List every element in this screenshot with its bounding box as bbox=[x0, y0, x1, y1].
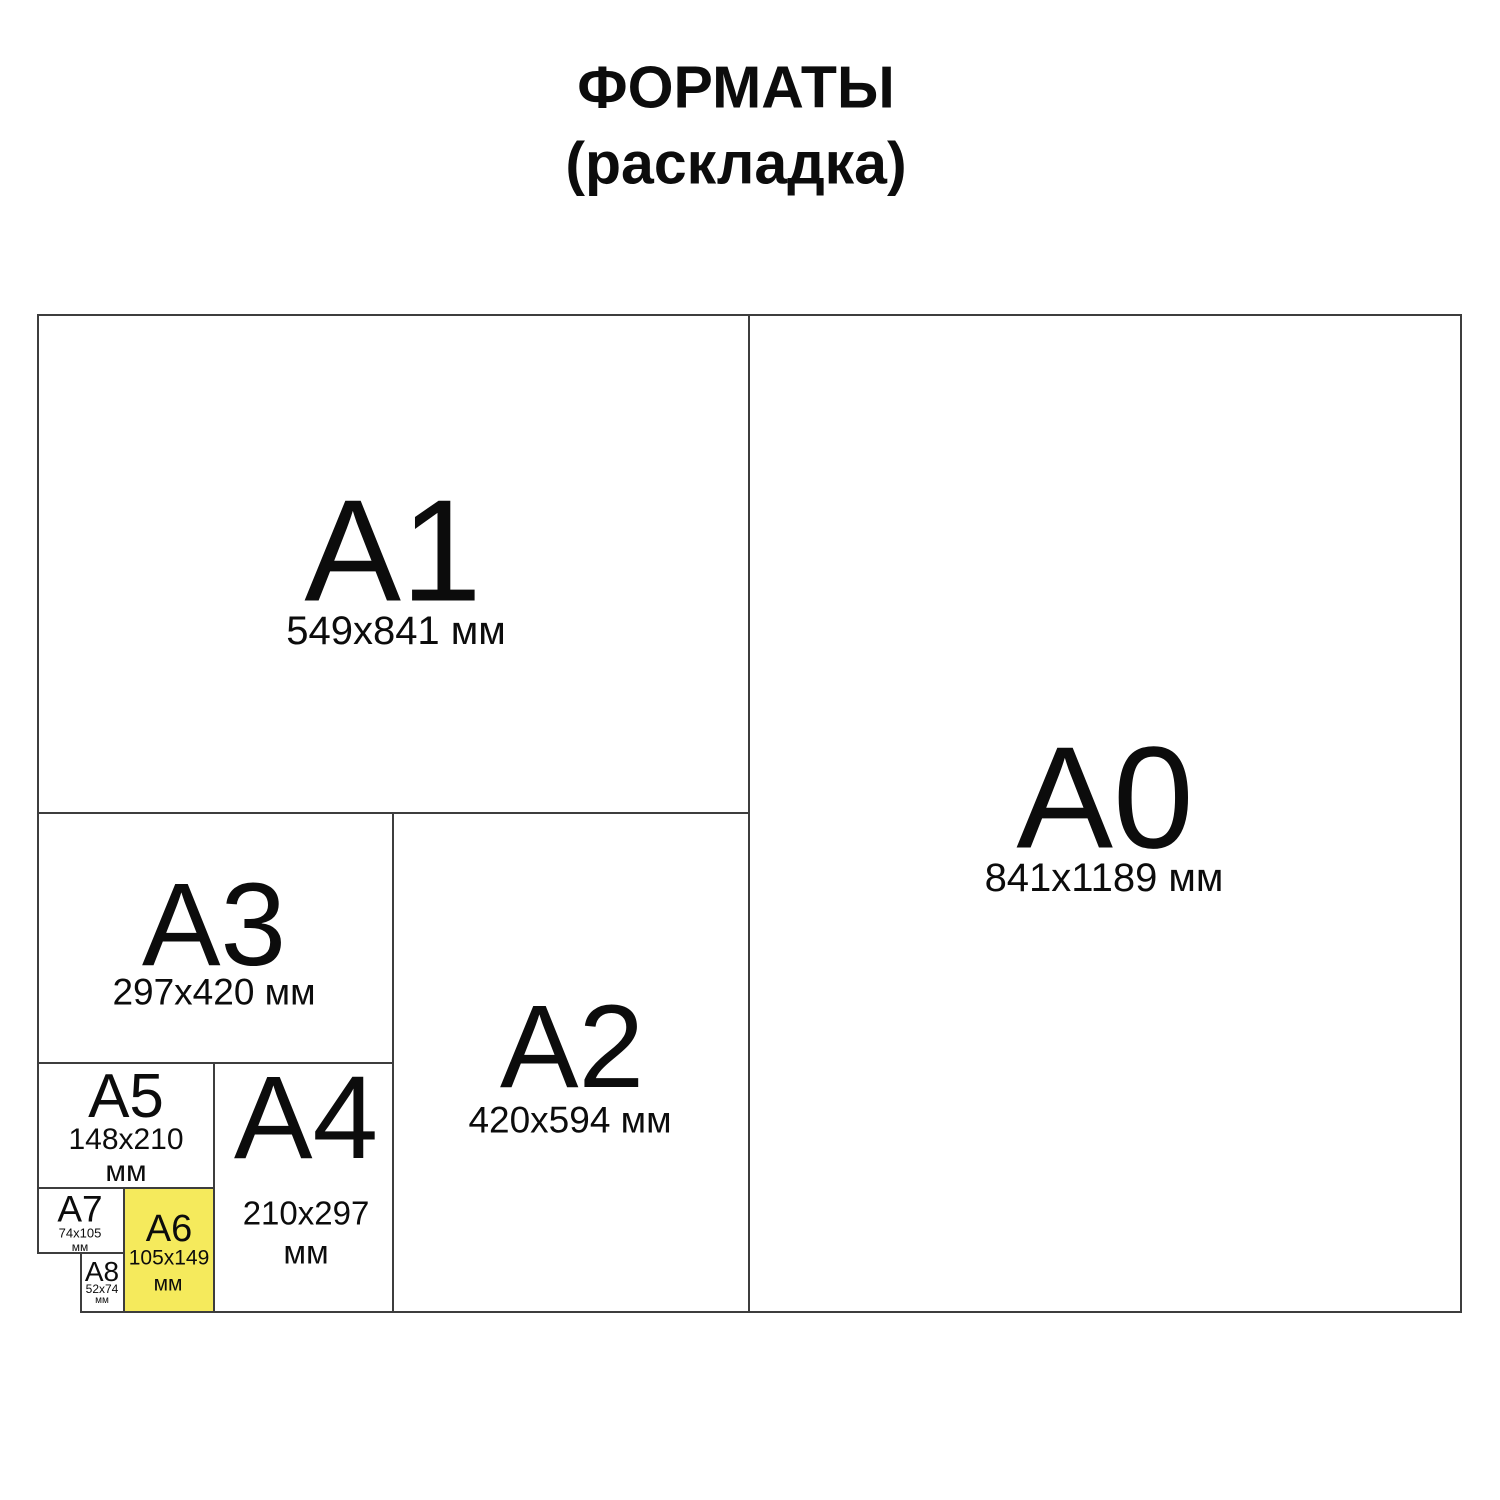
paper-formats-diagram: ФОРМАТЫ (раскладка) A1 549x841 мм A0 841… bbox=[0, 0, 1500, 1500]
format-a3-label: A3 bbox=[142, 866, 286, 984]
format-a6-label: A6 bbox=[146, 1210, 192, 1248]
format-a2-size: 420x594 мм bbox=[468, 1102, 671, 1139]
format-a6-size-line2: мм bbox=[154, 1274, 183, 1295]
format-a7-label: A7 bbox=[57, 1191, 102, 1228]
format-a1-size: 549x841 мм bbox=[286, 611, 506, 651]
format-a1-label: A1 bbox=[304, 479, 481, 624]
format-a6-size-line1: 105x149 bbox=[129, 1248, 210, 1269]
outer-border-left-line bbox=[37, 314, 39, 1254]
format-a5-size-line1: 148x210 bbox=[68, 1125, 183, 1155]
divider-a7-a6-line bbox=[123, 1187, 125, 1313]
divider-a8-left-line bbox=[80, 1252, 82, 1313]
outer-border-bottom-line bbox=[81, 1311, 1462, 1313]
format-a4-size-line1: 210x297 bbox=[243, 1197, 370, 1230]
format-a5-size-line2: мм bbox=[105, 1157, 146, 1187]
format-a0-label: A0 bbox=[1016, 726, 1193, 871]
format-a7-size-line2: мм bbox=[72, 1241, 89, 1253]
format-a7-size-line1: 74x105 bbox=[59, 1227, 102, 1240]
diagram-title-line2: (раскладка) bbox=[565, 135, 906, 194]
format-a3-size: 297x420 мм bbox=[112, 974, 315, 1011]
format-a2-label: A2 bbox=[500, 988, 644, 1106]
format-a4-size-line2: мм bbox=[283, 1236, 328, 1269]
diagram-title-line1: ФОРМАТЫ bbox=[577, 59, 894, 118]
format-a8-size-line2: мм bbox=[95, 1296, 109, 1306]
outer-border-right-line bbox=[1460, 314, 1462, 1313]
format-a4-label: A4 bbox=[234, 1059, 378, 1177]
format-a5-label: A5 bbox=[88, 1066, 164, 1128]
format-a8-size-line1: 52x74 bbox=[86, 1283, 119, 1295]
format-a0-size: 841x1189 мм bbox=[985, 858, 1224, 898]
